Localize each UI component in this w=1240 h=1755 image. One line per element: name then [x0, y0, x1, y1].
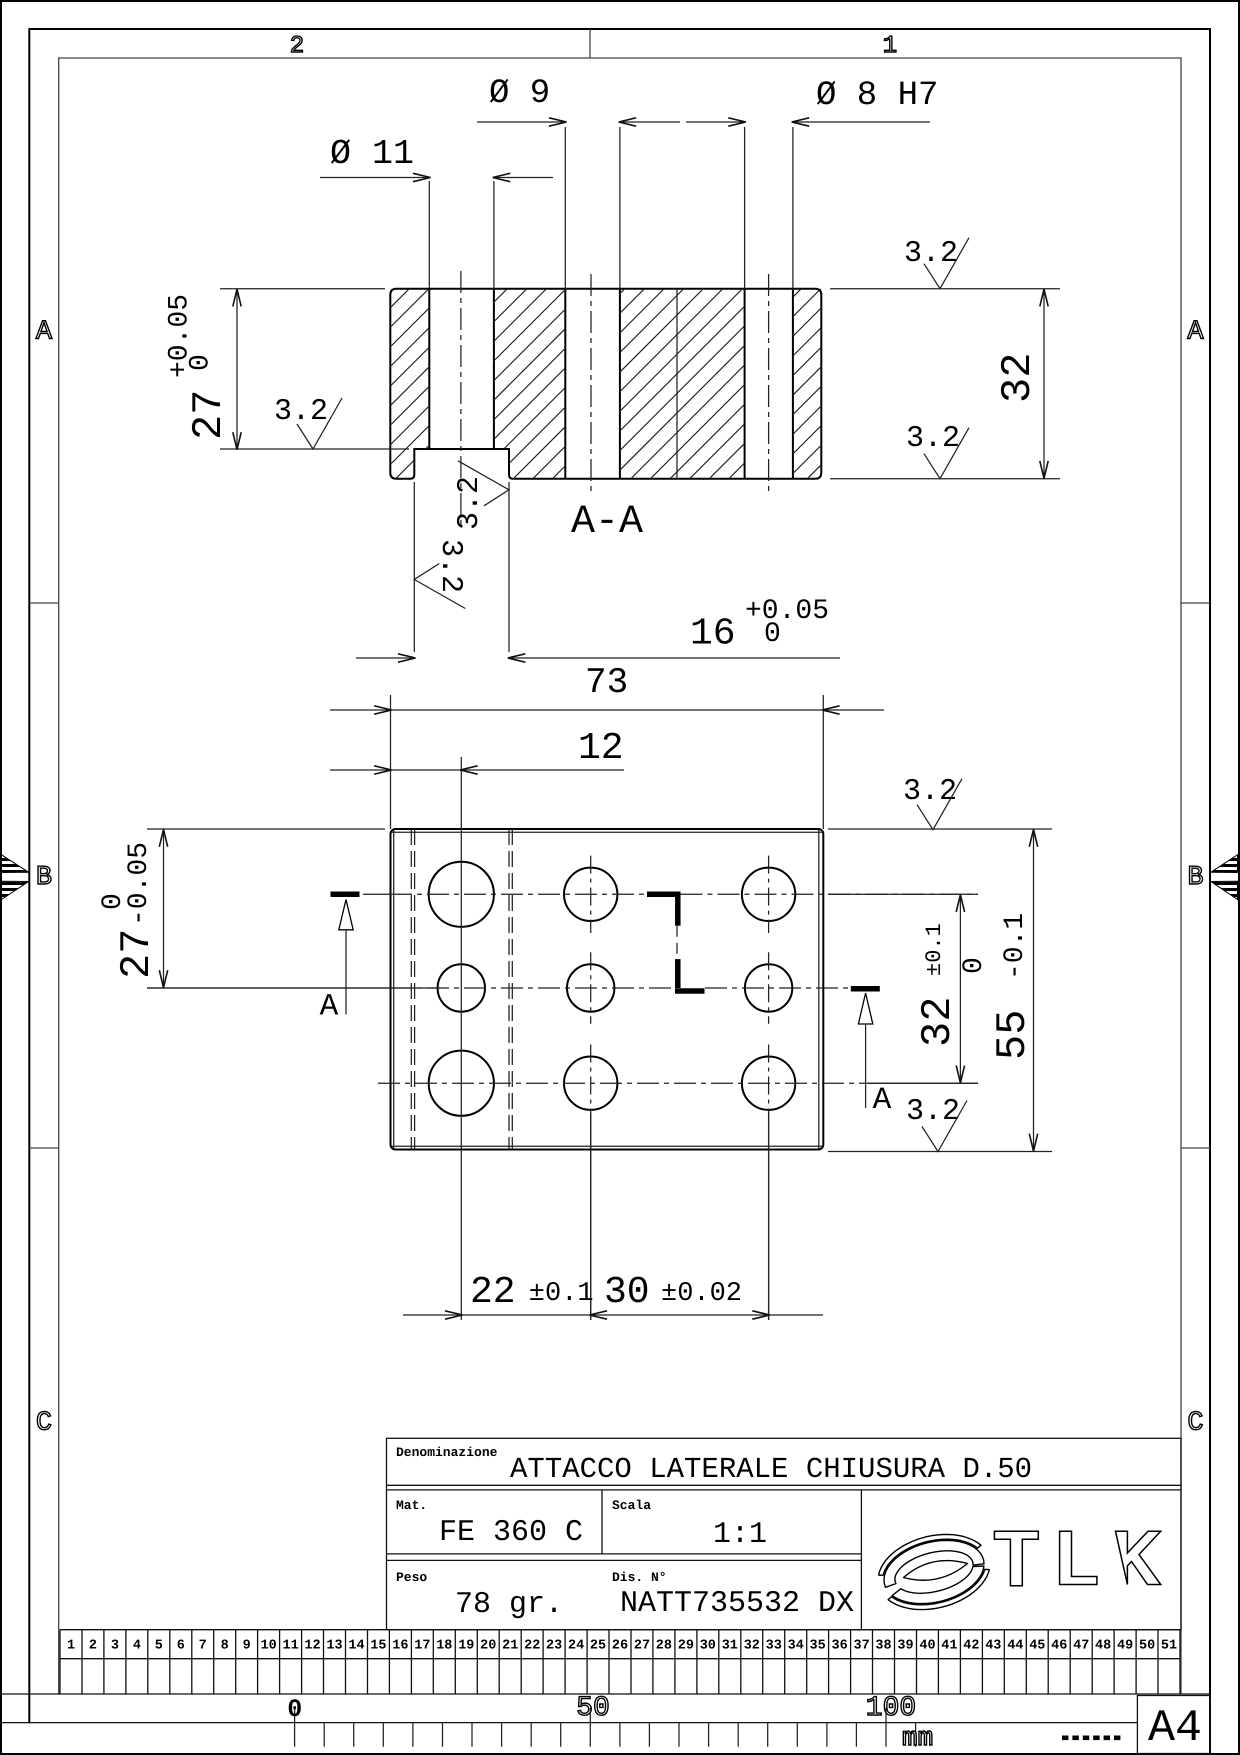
- svg-text:Scala: Scala: [612, 1498, 651, 1513]
- svg-text:A: A: [36, 318, 53, 348]
- svg-text:46: 46: [1051, 1639, 1067, 1654]
- svg-text:23: 23: [546, 1639, 562, 1654]
- svg-text:13: 13: [326, 1639, 342, 1654]
- svg-text:31: 31: [722, 1639, 738, 1654]
- svg-text:B: B: [36, 863, 52, 893]
- svg-text:5: 5: [155, 1639, 163, 1654]
- svg-text:47: 47: [1073, 1639, 1089, 1654]
- svg-text:A4: A4: [1148, 1703, 1202, 1754]
- svg-text:50: 50: [576, 1693, 610, 1724]
- svg-text:6: 6: [177, 1639, 185, 1654]
- svg-text:100: 100: [866, 1693, 916, 1724]
- svg-text:17: 17: [414, 1639, 430, 1654]
- svg-text:14: 14: [348, 1639, 364, 1654]
- svg-text:3: 3: [111, 1639, 119, 1654]
- svg-text:26: 26: [612, 1639, 628, 1654]
- svg-text:43: 43: [985, 1639, 1001, 1654]
- svg-text:50: 50: [1139, 1639, 1155, 1654]
- svg-text:35: 35: [809, 1639, 825, 1654]
- svg-text:1: 1: [67, 1639, 75, 1654]
- svg-text:ATTACCO LATERALE CHIUSURA D.50: ATTACCO LATERALE CHIUSURA D.50: [510, 1453, 1032, 1486]
- svg-text:27: 27: [634, 1639, 650, 1654]
- svg-text:Dis. N°: Dis. N°: [612, 1570, 667, 1585]
- svg-text:21: 21: [502, 1639, 518, 1654]
- svg-text:27: 27: [113, 929, 161, 979]
- svg-text:2: 2: [89, 1639, 97, 1654]
- svg-text:3.2: 3.2: [903, 775, 957, 809]
- svg-text:55: 55: [989, 1010, 1037, 1060]
- svg-text:3.2: 3.2: [433, 539, 467, 593]
- svg-text:34: 34: [788, 1639, 804, 1654]
- svg-text:Peso: Peso: [396, 1570, 427, 1585]
- svg-text:48: 48: [1095, 1639, 1111, 1654]
- svg-text:24: 24: [568, 1639, 584, 1654]
- svg-text:mm: mm: [902, 1723, 933, 1753]
- svg-text:22: 22: [470, 1271, 516, 1314]
- svg-text:4: 4: [133, 1639, 141, 1654]
- svg-text:42: 42: [963, 1639, 979, 1654]
- svg-text:40: 40: [919, 1639, 935, 1654]
- svg-text:1:1: 1:1: [713, 1518, 767, 1552]
- svg-text:8: 8: [221, 1639, 229, 1654]
- svg-text:A: A: [1187, 318, 1204, 348]
- svg-text:7: 7: [199, 1639, 207, 1654]
- svg-text:3.2: 3.2: [906, 1095, 960, 1129]
- svg-text:16: 16: [392, 1639, 408, 1654]
- svg-text:27: 27: [185, 390, 233, 440]
- svg-text:C: C: [1187, 1409, 1203, 1439]
- svg-text:73: 73: [585, 662, 628, 703]
- svg-text:±0.1: ±0.1: [922, 923, 947, 976]
- svg-text:36: 36: [831, 1639, 847, 1654]
- svg-text:45: 45: [1029, 1639, 1045, 1654]
- svg-text:41: 41: [941, 1639, 957, 1654]
- svg-text:19: 19: [458, 1639, 474, 1654]
- svg-text:-0.1: -0.1: [1000, 913, 1031, 980]
- svg-text:38: 38: [875, 1639, 891, 1654]
- svg-text:±0.1: ±0.1: [529, 1279, 594, 1309]
- svg-text:A: A: [873, 1083, 892, 1118]
- svg-text:±0.02: ±0.02: [661, 1279, 742, 1309]
- svg-text:3.2: 3.2: [904, 237, 958, 271]
- svg-text:12: 12: [578, 727, 624, 770]
- svg-text:78 gr.: 78 gr.: [455, 1588, 563, 1622]
- svg-text:30: 30: [604, 1271, 650, 1314]
- svg-text:Mat.: Mat.: [396, 1498, 427, 1513]
- svg-text:11: 11: [282, 1639, 298, 1654]
- svg-text:3.2: 3.2: [274, 395, 328, 429]
- svg-text:18: 18: [436, 1639, 452, 1654]
- svg-text:Denominazione: Denominazione: [396, 1445, 498, 1460]
- svg-text:Ø 9: Ø 9: [489, 75, 550, 113]
- svg-text:FE 360 C: FE 360 C: [439, 1516, 583, 1550]
- svg-text:39: 39: [897, 1639, 913, 1654]
- svg-text:32: 32: [994, 353, 1042, 403]
- svg-text:20: 20: [480, 1639, 496, 1654]
- svg-text:0: 0: [959, 957, 990, 974]
- svg-text:NATT735532 DX: NATT735532 DX: [620, 1587, 854, 1621]
- svg-text:33: 33: [766, 1639, 782, 1654]
- svg-text:15: 15: [370, 1639, 386, 1654]
- svg-text:28: 28: [656, 1639, 672, 1654]
- svg-text:25: 25: [590, 1639, 606, 1654]
- svg-text:3.2: 3.2: [453, 476, 487, 530]
- svg-text:+0.05: +0.05: [745, 596, 829, 627]
- svg-text:16: 16: [690, 613, 736, 656]
- svg-text:37: 37: [853, 1639, 869, 1654]
- svg-text:0: 0: [764, 619, 781, 650]
- svg-text:Ø 11: Ø 11: [330, 134, 414, 174]
- svg-text:12: 12: [304, 1639, 320, 1654]
- svg-text:32: 32: [744, 1639, 760, 1654]
- svg-text:Ø 8 H7: Ø 8 H7: [816, 77, 938, 115]
- svg-text:44: 44: [1007, 1639, 1023, 1654]
- svg-text:-0.05: -0.05: [124, 842, 155, 926]
- svg-text:B: B: [1187, 863, 1203, 893]
- svg-text:10: 10: [260, 1639, 276, 1654]
- svg-text:29: 29: [678, 1639, 694, 1654]
- svg-text:51: 51: [1161, 1639, 1177, 1654]
- svg-text:A-A: A-A: [571, 500, 643, 545]
- svg-text:1: 1: [883, 33, 897, 60]
- svg-text:0: 0: [186, 354, 217, 371]
- svg-text:22: 22: [524, 1639, 540, 1654]
- svg-text:A: A: [320, 989, 339, 1024]
- svg-text:C: C: [36, 1409, 52, 1439]
- svg-text:2: 2: [290, 33, 304, 60]
- svg-text:49: 49: [1117, 1639, 1133, 1654]
- svg-text:30: 30: [700, 1639, 716, 1654]
- svg-text:32: 32: [914, 997, 962, 1047]
- svg-text:3.2: 3.2: [906, 422, 960, 456]
- svg-text:9: 9: [243, 1639, 251, 1654]
